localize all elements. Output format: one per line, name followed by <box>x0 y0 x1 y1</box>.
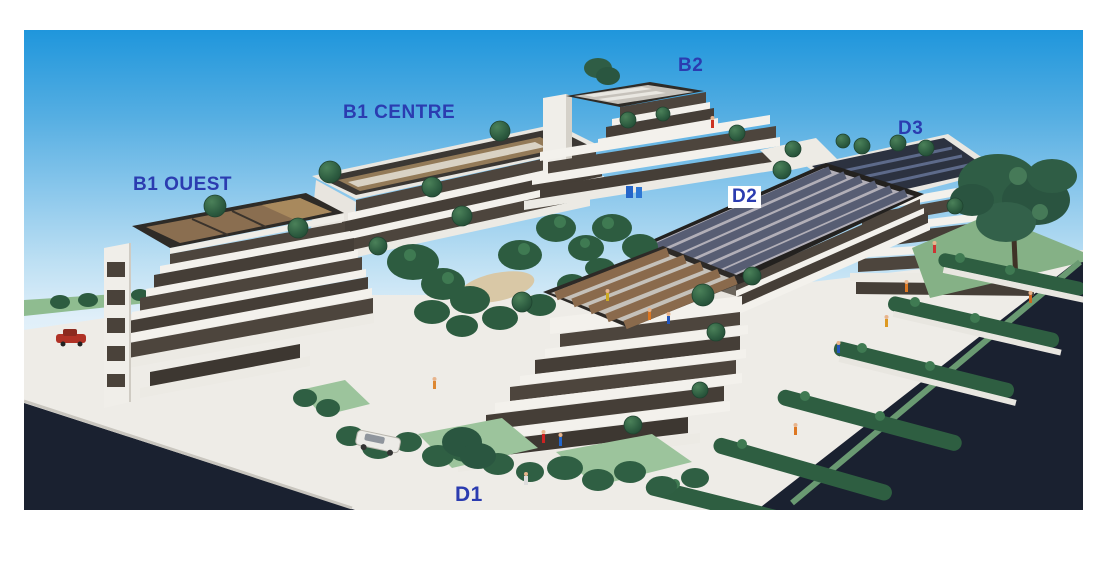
building-label-b2: B2 <box>678 55 703 77</box>
building-label-b1-ouest: B1 OUEST <box>133 174 232 196</box>
building-label-d1: D1 <box>455 483 483 507</box>
building-label-d2: D2 <box>728 186 761 208</box>
scanned-photo-page: B1 OUEST B1 CENTRE B2 D3 D2 D1 <box>0 0 1109 564</box>
model-photo <box>0 0 1109 564</box>
building-label-d3: D3 <box>898 118 923 140</box>
building-label-b1-centre: B1 CENTRE <box>343 102 455 124</box>
